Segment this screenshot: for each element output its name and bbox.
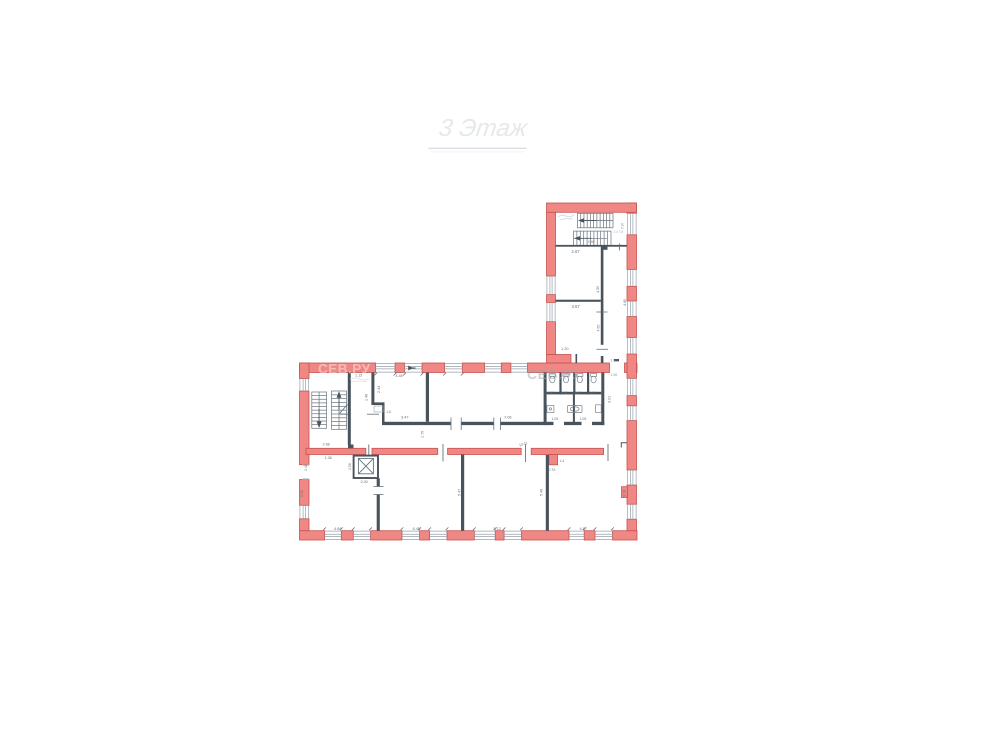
svg-text:0.97: 0.97: [548, 391, 554, 395]
svg-text:4.45: 4.45: [396, 374, 403, 378]
svg-text:5.52: 5.52: [300, 490, 304, 497]
svg-text:СЕВ.РУ: СЕВ.РУ: [318, 362, 371, 377]
svg-text:4.50: 4.50: [596, 325, 600, 332]
svg-text:3.47: 3.47: [401, 415, 409, 420]
svg-text:1.05: 1.05: [580, 417, 587, 421]
svg-text:1.4: 1.4: [560, 459, 565, 463]
svg-text:1.38: 1.38: [325, 456, 332, 460]
svg-text:0.90: 0.90: [621, 223, 625, 229]
svg-text:2.4 7.8: 2.4 7.8: [614, 230, 624, 234]
svg-text:5.12: 5.12: [494, 526, 502, 531]
svg-text:2.68: 2.68: [323, 442, 330, 446]
svg-text:2.40: 2.40: [588, 240, 595, 244]
svg-text:1.20: 1.20: [561, 346, 569, 351]
svg-text:1.56: 1.56: [348, 463, 352, 470]
svg-text:4.50: 4.50: [596, 286, 600, 293]
svg-text:2.42: 2.42: [304, 464, 308, 471]
svg-text:8.45: 8.45: [413, 526, 421, 531]
svg-text:5.47: 5.47: [458, 489, 462, 496]
svg-text:1.17: 1.17: [590, 391, 596, 395]
svg-text:1.98: 1.98: [611, 373, 618, 377]
svg-text:1.98: 1.98: [611, 358, 618, 362]
svg-text:0.97: 0.97: [575, 391, 581, 395]
svg-text:5.49: 5.49: [539, 489, 543, 496]
svg-text:2.67: 2.67: [572, 249, 581, 254]
svg-text:1.05: 1.05: [552, 417, 559, 421]
svg-text:2.44: 2.44: [377, 386, 381, 393]
svg-text:3 Этаж: 3 Этаж: [437, 115, 530, 142]
svg-text:0.70: 0.70: [549, 468, 556, 472]
svg-text:2.00: 2.00: [361, 480, 368, 484]
svg-text:0.97: 0.97: [561, 391, 567, 395]
svg-text:1.6: 1.6: [387, 410, 392, 414]
svg-text:4.89: 4.89: [334, 526, 342, 531]
svg-text:3.02: 3.02: [608, 396, 612, 403]
svg-text:1.46: 1.46: [364, 394, 368, 401]
svg-text:СЕВ.РУ: СЕВ.РУ: [527, 366, 581, 382]
svg-text:7.06: 7.06: [504, 415, 512, 420]
svg-text:1.75: 1.75: [421, 431, 425, 438]
svg-text:3.67: 3.67: [572, 304, 581, 309]
svg-text:4.80: 4.80: [623, 299, 627, 306]
svg-text:3.78: 3.78: [622, 490, 626, 497]
svg-text:4.87: 4.87: [580, 526, 588, 531]
